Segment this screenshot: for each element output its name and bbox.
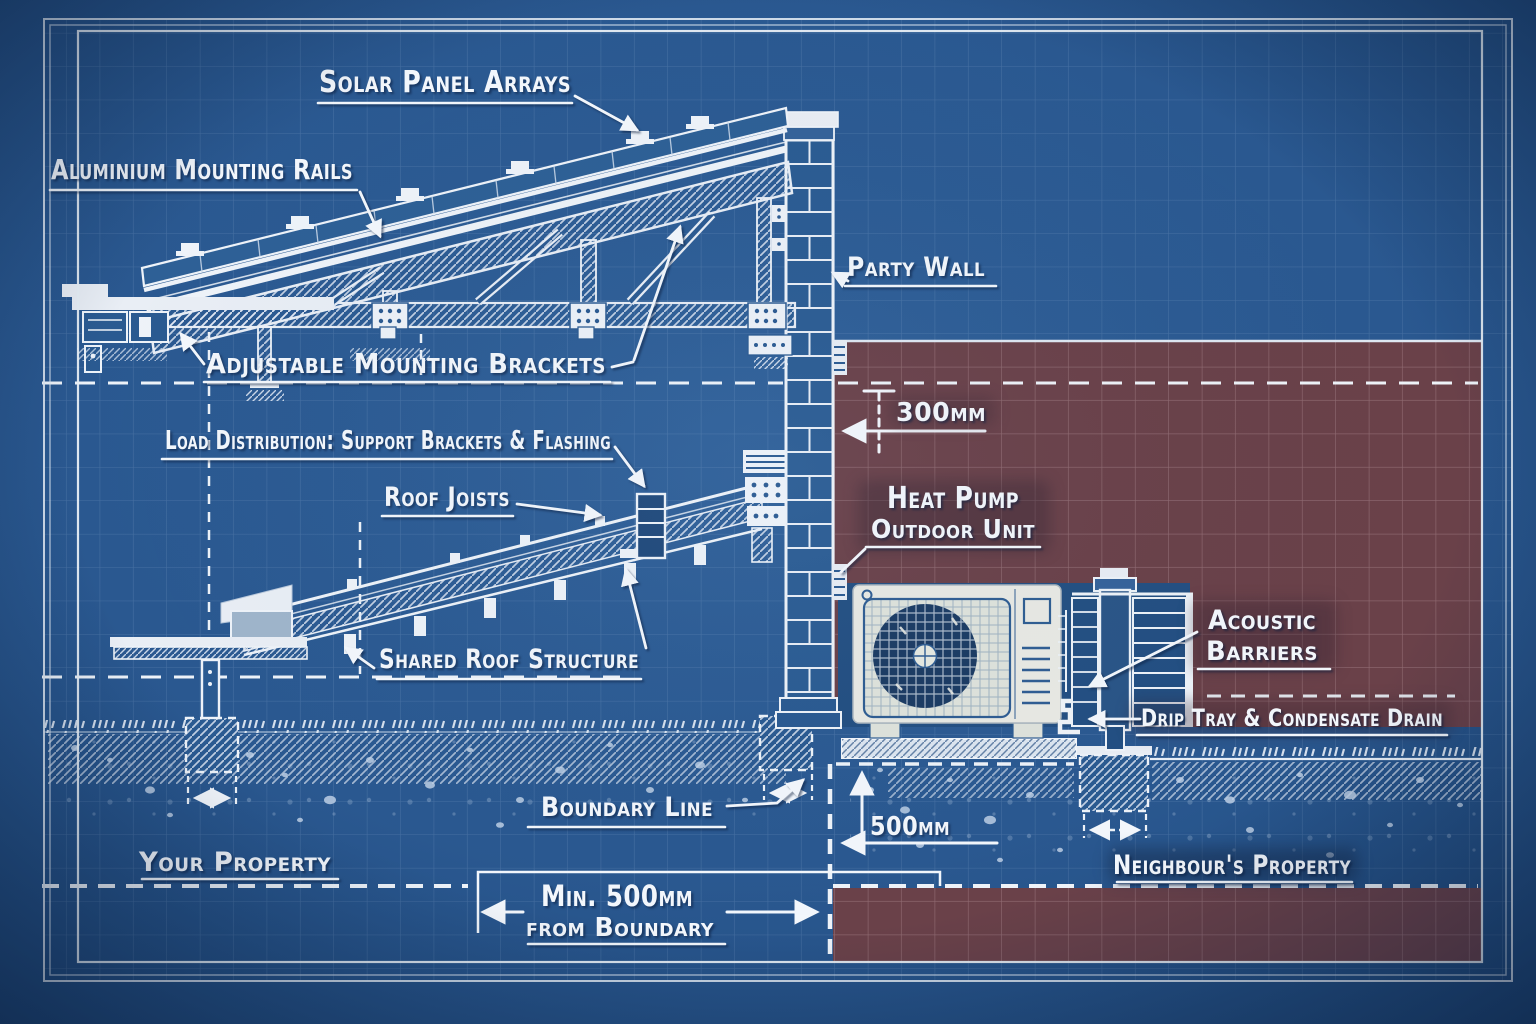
label-roof-joists: Roof Joists (384, 482, 510, 513)
label-load-distribution: Load Distribution: Support Brackets & Fl… (165, 426, 611, 456)
blueprint-canvas: Solar Panel Arrays Aluminium Mounting Ra… (0, 0, 1536, 1024)
label-boundary-line: Boundary Line (541, 792, 713, 823)
label-neighbours-property: Neighbour's Property (1113, 850, 1351, 881)
label-heat-pump: Heat Pump (887, 481, 1019, 516)
label-300mm: 300mm (896, 398, 986, 428)
label-adjustable-mounting-brackets: Adjustable Mounting Brackets (206, 347, 606, 380)
label-shared-roof-structure: Shared Roof Structure (379, 644, 639, 675)
neighbour-zone-lower (833, 888, 1482, 963)
label-outdoor-unit: Outdoor Unit (871, 515, 1035, 545)
label-drip-tray: Drip Tray & Condensate Drain (1141, 704, 1443, 732)
blueprint-drawing: Solar Panel Arrays Aluminium Mounting Ra… (0, 0, 1536, 1024)
label-solar-panel-arrays: Solar Panel Arrays (319, 65, 571, 100)
label-min-500mm: Min. 500mm (541, 879, 693, 913)
label-barriers: Barriers (1206, 636, 1318, 667)
unit-foot-right (1013, 723, 1043, 738)
label-from-boundary: from Boundary (526, 913, 714, 943)
label-acoustic: Acoustic (1208, 605, 1316, 636)
label-500mm: 500mm (870, 812, 950, 842)
label-your-property: Your Property (138, 847, 331, 878)
barrier-post (1100, 590, 1130, 730)
unit-foot-left (870, 723, 900, 738)
label-aluminium-mounting-rails: Aluminium Mounting Rails (51, 153, 353, 186)
label-party-wall: Party Wall (847, 252, 985, 283)
